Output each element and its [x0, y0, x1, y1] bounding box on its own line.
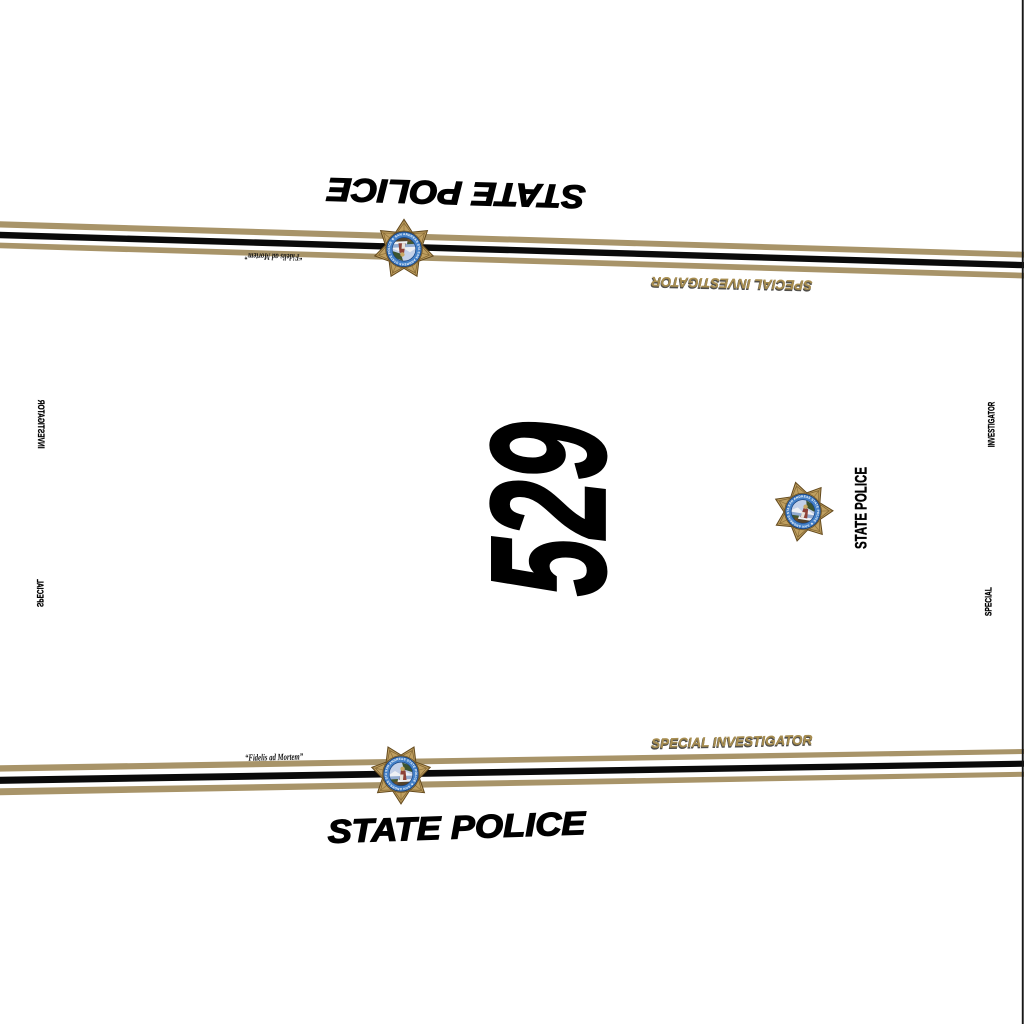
svg-text:“Fidelis ad Mortem”: “Fidelis ad Mortem”	[245, 752, 303, 764]
svg-text:STATE POLICE: STATE POLICE	[853, 467, 871, 549]
svg-text:SPECIAL: SPECIAL	[983, 587, 993, 616]
svg-text:“Fidelis ad Mortem”: “Fidelis ad Mortem”	[244, 250, 302, 262]
svg-text:INVESTIGATOR: INVESTIGATOR	[987, 401, 997, 447]
svg-text:INVESTIGATOR: INVESTIGATOR	[36, 399, 46, 448]
svg-text:STATE POLICE: STATE POLICE	[326, 171, 586, 215]
svg-text:SPECIAL: SPECIAL	[35, 579, 45, 607]
svg-text:529: 529	[457, 422, 640, 596]
svg-text:STATE POLICE: STATE POLICE	[327, 805, 588, 850]
svg-text:SPECIAL INVESTIGATOR: SPECIAL INVESTIGATOR	[651, 274, 813, 293]
